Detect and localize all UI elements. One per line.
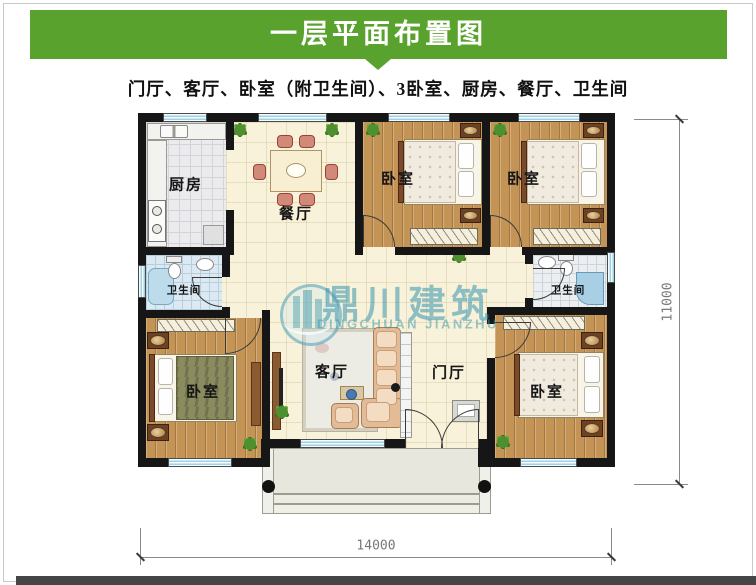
sofa-cushion: [376, 350, 397, 367]
floor-plan-page: 一层平面布置图 门厅、客厅、卧室（附卫生间）、3卧室、厨房、餐厅、卫生间: [0, 0, 756, 585]
wall: [262, 310, 270, 448]
bottom-bar: [16, 576, 756, 585]
wardrobe: [157, 319, 235, 332]
plate-icon: [286, 163, 306, 178]
room-label-bathroom: 卫生间: [167, 283, 202, 298]
room-label-kitchen: 厨房: [169, 174, 203, 195]
dresser: [251, 362, 261, 426]
window: [300, 439, 385, 448]
pillow: [581, 143, 597, 169]
window: [388, 113, 450, 122]
nightstand: [147, 332, 169, 349]
room-label-foyer: 门厅: [432, 362, 466, 383]
room-label-bathroom: 卫生间: [551, 283, 586, 298]
toilet-tank-icon: [166, 256, 182, 263]
window: [518, 113, 580, 122]
nightstand: [147, 424, 169, 441]
nightstand: [460, 208, 481, 223]
wall: [607, 113, 615, 467]
porch-step: [268, 494, 485, 504]
plant-icon: [494, 124, 506, 136]
fridge: [203, 225, 224, 245]
porch-slab: [262, 448, 491, 494]
pillow: [158, 358, 173, 385]
dining-chair: [325, 164, 338, 180]
dining-chair: [253, 164, 266, 180]
rug-pattern: [315, 343, 329, 353]
window: [520, 458, 577, 467]
pillow: [581, 171, 597, 197]
nightstand: [581, 332, 603, 349]
window: [168, 458, 232, 467]
wall: [478, 448, 487, 467]
window: [138, 265, 146, 298]
wardrobe: [533, 228, 601, 245]
porch-column-icon: [262, 480, 275, 493]
room-label-bedroom: 卧室: [381, 168, 415, 189]
title-banner: 一层平面布置图: [30, 10, 727, 59]
wall: [138, 310, 225, 318]
plant-icon: [276, 406, 288, 418]
porch-step: [268, 504, 485, 514]
stove-burner-icon: [152, 206, 162, 216]
page-title: 一层平面布置图: [270, 19, 487, 49]
kitchen-sink: [160, 125, 188, 138]
window: [258, 113, 327, 122]
wall: [522, 247, 615, 255]
pillow: [158, 388, 173, 415]
room-label-bedroom: 卧室: [186, 381, 220, 402]
dimension-line: [679, 119, 680, 485]
wall: [487, 307, 615, 315]
wall: [479, 439, 487, 448]
pillow: [458, 171, 474, 197]
stove-burner-icon: [152, 224, 162, 234]
sofa-cushion: [376, 331, 397, 348]
wall: [525, 247, 533, 264]
dimension-line: [140, 557, 612, 558]
nightstand: [460, 123, 481, 138]
room-list-subtitle: 门厅、客厅、卧室（附卫生间）、3卧室、厨房、餐厅、卫生间: [0, 76, 756, 101]
dimension-width-label: 14000: [356, 539, 395, 554]
nightstand: [583, 208, 604, 223]
wall: [482, 113, 490, 255]
room-label-living: 客厅: [315, 361, 349, 382]
plant-pot-icon: [346, 389, 357, 400]
wall: [487, 307, 495, 324]
wall: [487, 358, 495, 458]
nightstand: [583, 123, 604, 138]
sofa-cushion: [366, 402, 390, 422]
dining-chair: [277, 135, 293, 148]
pillow: [584, 356, 600, 383]
dimension-height-label: 11000: [661, 282, 676, 321]
armchair-cushion: [335, 407, 353, 423]
plant-icon: [497, 436, 509, 448]
pillow: [458, 143, 474, 169]
window: [607, 252, 615, 283]
wall: [226, 122, 234, 150]
room-label-bedroom: 卧室: [530, 381, 564, 402]
room-label-dining: 餐厅: [279, 203, 313, 224]
wall: [355, 113, 363, 255]
bed-headboard: [149, 354, 155, 422]
pillow: [584, 386, 600, 413]
plant-icon: [326, 124, 338, 136]
window: [163, 113, 207, 122]
room-label-bedroom: 卧室: [507, 168, 541, 189]
wall: [395, 247, 490, 255]
wardrobe: [410, 228, 478, 245]
plant-icon: [367, 124, 379, 136]
porch-column-icon: [478, 480, 491, 493]
floor-lamp-icon: [391, 383, 400, 392]
nightstand: [581, 420, 603, 437]
dining-chair: [299, 135, 315, 148]
toilet-tank-icon: [558, 254, 574, 261]
sink-icon: [196, 258, 214, 271]
wall: [138, 247, 230, 255]
plant-icon: [244, 438, 256, 450]
banner-pointer-icon: [365, 59, 391, 70]
plant-icon: [234, 124, 246, 136]
bed-footboard: [514, 354, 520, 416]
wall: [261, 448, 270, 467]
wall: [222, 247, 230, 277]
toilet-icon: [168, 263, 181, 279]
